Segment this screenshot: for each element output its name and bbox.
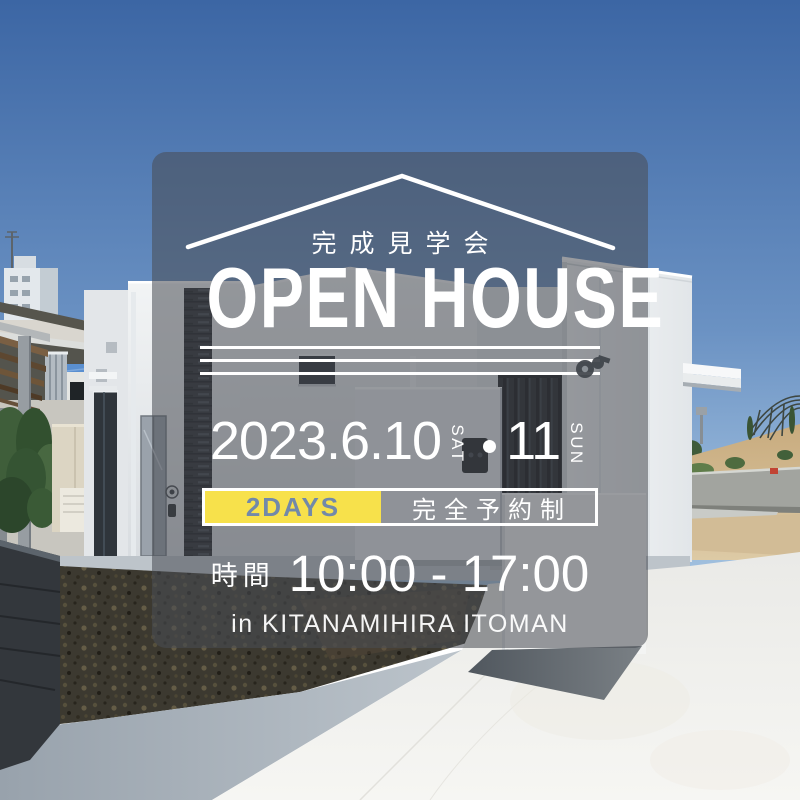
event-overlay-panel: 完成見学会 OPEN HOUSE 2023.6.10 SAT 11 SUN	[152, 152, 648, 648]
time-value: 10:00 - 17:00	[289, 548, 590, 599]
reservation-label: 完全予約制	[381, 491, 595, 523]
date-main: 2023.6.10	[210, 414, 441, 468]
days-badge: 2DAYS	[205, 491, 381, 523]
triple-rule-divider	[200, 346, 600, 385]
date-separator-dot	[483, 440, 496, 453]
time-label: 時間	[211, 554, 275, 593]
info-banner: 2DAYS 完全予約制	[202, 488, 598, 526]
date-day2-dow: SUN	[564, 420, 588, 468]
hose-reel-icon	[572, 348, 612, 382]
open-house-flyer: 完成見学会 OPEN HOUSE 2023.6.10 SAT 11 SUN	[0, 0, 800, 800]
event-title: OPEN HOUSE	[207, 256, 594, 341]
event-time: 時間 10:00 - 17:00	[152, 549, 648, 599]
event-location: in KITANAMIHIRA ITOMAN	[152, 610, 648, 639]
date-day2: 11	[506, 414, 560, 468]
event-dates: 2023.6.10 SAT 11 SUN	[152, 406, 648, 468]
date-day1-dow: SAT	[445, 420, 469, 468]
